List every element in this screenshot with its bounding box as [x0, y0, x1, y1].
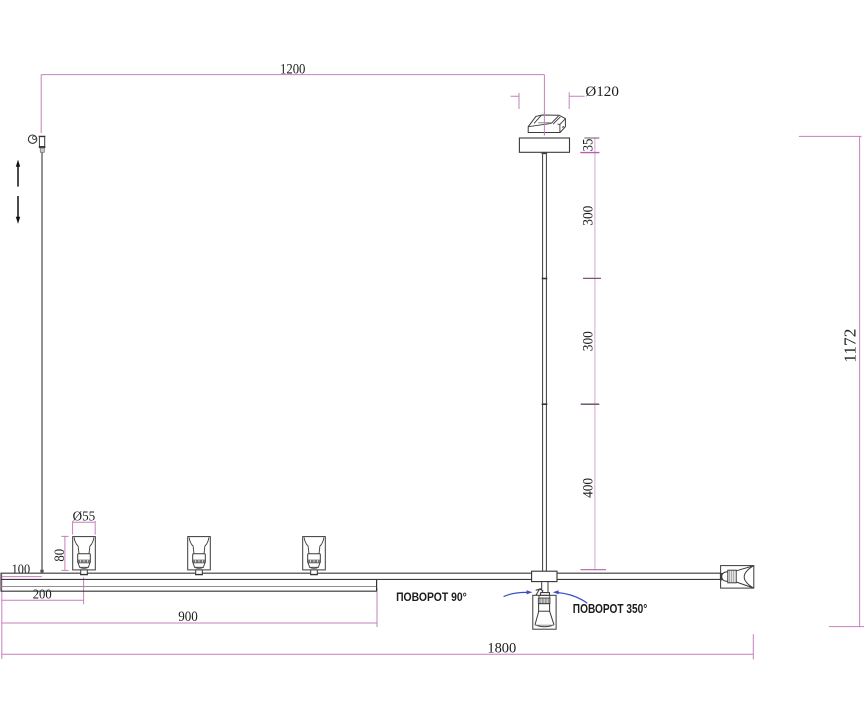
- svg-text:1172: 1172: [841, 329, 860, 363]
- svg-text:Ø55: Ø55: [73, 510, 96, 525]
- svg-text:35: 35: [581, 139, 597, 152]
- svg-text:200: 200: [33, 586, 52, 601]
- svg-text:ПОВОРОТ 90°: ПОВОРОТ 90°: [396, 590, 467, 604]
- svg-text:Ø120: Ø120: [585, 84, 619, 100]
- svg-text:80: 80: [52, 549, 68, 562]
- svg-text:ПОВОРОТ 350°: ПОВОРОТ 350°: [573, 601, 648, 616]
- svg-text:100: 100: [12, 562, 31, 577]
- svg-text:300: 300: [581, 331, 597, 351]
- svg-text:1200: 1200: [280, 62, 305, 78]
- svg-text:1800: 1800: [487, 640, 516, 656]
- svg-text:400: 400: [581, 478, 597, 498]
- svg-text:900: 900: [178, 609, 198, 625]
- svg-text:300: 300: [581, 206, 597, 226]
